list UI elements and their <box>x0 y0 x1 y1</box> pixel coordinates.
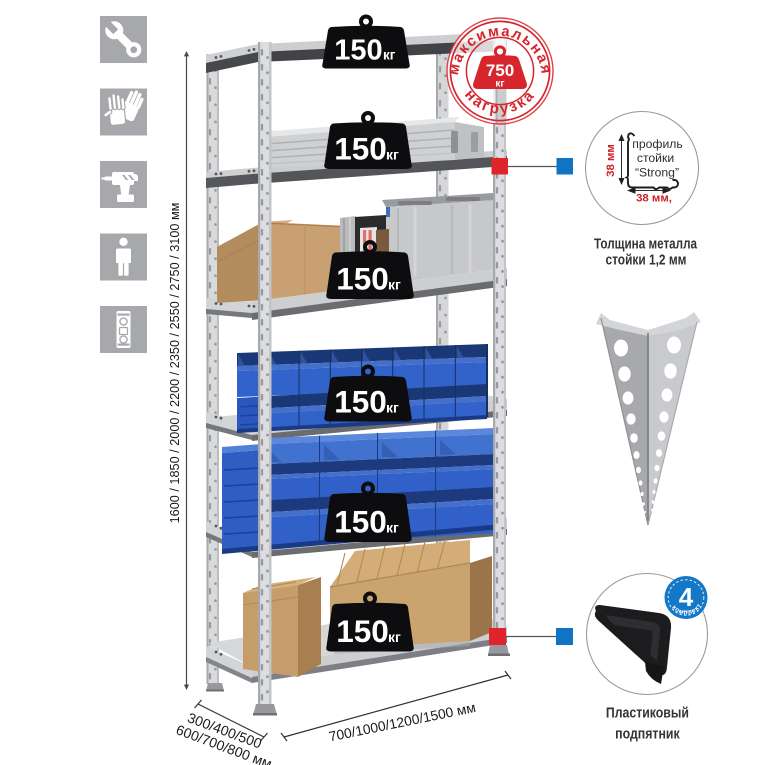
svg-text:150: 150 <box>334 384 387 420</box>
svg-text:кг: кг <box>495 79 504 90</box>
svg-text:“Strong”: “Strong” <box>635 166 679 180</box>
svg-text:150: 150 <box>334 131 387 167</box>
svg-text:кг: кг <box>386 400 399 416</box>
svg-text:4: 4 <box>679 582 694 612</box>
svg-text:150: 150 <box>334 504 387 540</box>
svg-text:подпятник: подпятник <box>615 727 680 743</box>
svg-text:750: 750 <box>486 61 514 80</box>
svg-text:150: 150 <box>336 613 389 649</box>
svg-text:Толщина металла: Толщина металла <box>594 237 698 253</box>
svg-text:профиль: профиль <box>632 137 682 151</box>
svg-text:38 мм: 38 мм <box>605 144 617 177</box>
svg-text:кг: кг <box>386 520 399 536</box>
svg-text:кг: кг <box>386 147 399 163</box>
svg-text:38 мм,: 38 мм, <box>636 193 672 205</box>
svg-text:150: 150 <box>336 261 389 297</box>
svg-text:150: 150 <box>334 35 382 67</box>
svg-text:Пластиковый: Пластиковый <box>606 706 689 722</box>
svg-text:кг: кг <box>388 277 401 293</box>
svg-text:стойки: стойки <box>637 151 674 165</box>
svg-text:1600 / 1850 / 2000 / 2200 / 23: 1600 / 1850 / 2000 / 2200 / 2350 / 2550 … <box>168 203 182 524</box>
svg-text:стойки 1,2 мм: стойки 1,2 мм <box>606 253 687 269</box>
svg-text:кг: кг <box>388 629 401 645</box>
svg-text:кг: кг <box>383 48 396 63</box>
